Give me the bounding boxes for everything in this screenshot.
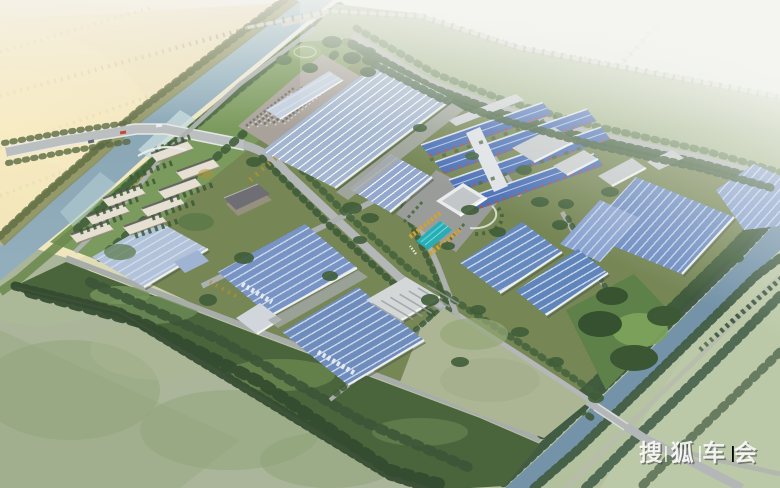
- svg-text:搜狐车会: 搜狐车会: [639, 440, 765, 466]
